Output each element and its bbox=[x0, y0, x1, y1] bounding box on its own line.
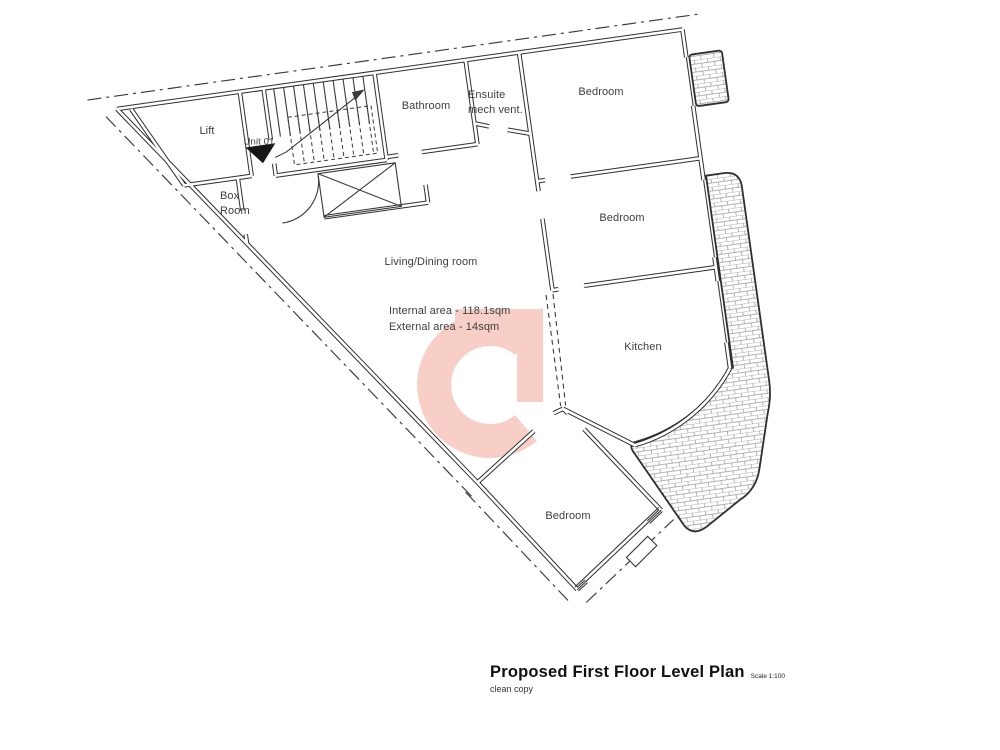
door-swing-arc bbox=[277, 176, 324, 223]
open-plan-dashed-lines bbox=[545, 294, 569, 406]
stair-direction-arrow bbox=[352, 89, 366, 101]
external-ledge bbox=[626, 536, 656, 566]
drawing-scale: Scale 1:100 bbox=[751, 673, 785, 680]
floor-plan-page: Lift Unit 01 Box Room Bathroom Ensuite m… bbox=[0, 0, 1000, 750]
title-block: Proposed First Floor Level Plan Scale 1:… bbox=[490, 663, 785, 682]
drawing-subtitle: clean copy bbox=[490, 684, 533, 694]
staircase bbox=[266, 76, 378, 167]
drawing-title: Proposed First Floor Level Plan bbox=[490, 663, 745, 682]
floor-plan-drawing bbox=[0, 0, 1000, 750]
balcony-top-right bbox=[689, 50, 729, 106]
site-boundary-lines bbox=[87, 14, 780, 662]
logo-g-watermark bbox=[434, 309, 543, 441]
terrace-right bbox=[595, 171, 788, 539]
